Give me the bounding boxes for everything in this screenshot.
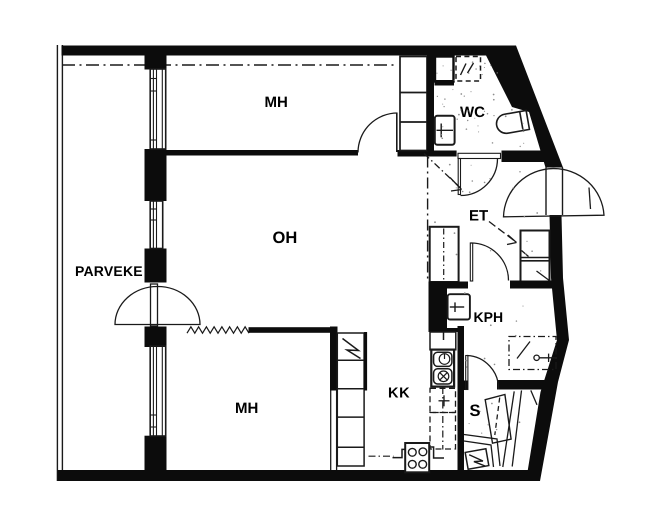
svg-text:WC: WC <box>460 104 485 121</box>
svg-text:KPH: KPH <box>474 309 504 325</box>
svg-text:OH: OH <box>273 229 298 247</box>
svg-text:MH: MH <box>265 94 288 111</box>
svg-text:S: S <box>470 402 481 420</box>
svg-text:KK: KK <box>388 386 410 402</box>
svg-text:PARVEKE: PARVEKE <box>75 263 143 279</box>
svg-text:ET: ET <box>469 208 488 225</box>
svg-text:MH: MH <box>235 400 258 417</box>
